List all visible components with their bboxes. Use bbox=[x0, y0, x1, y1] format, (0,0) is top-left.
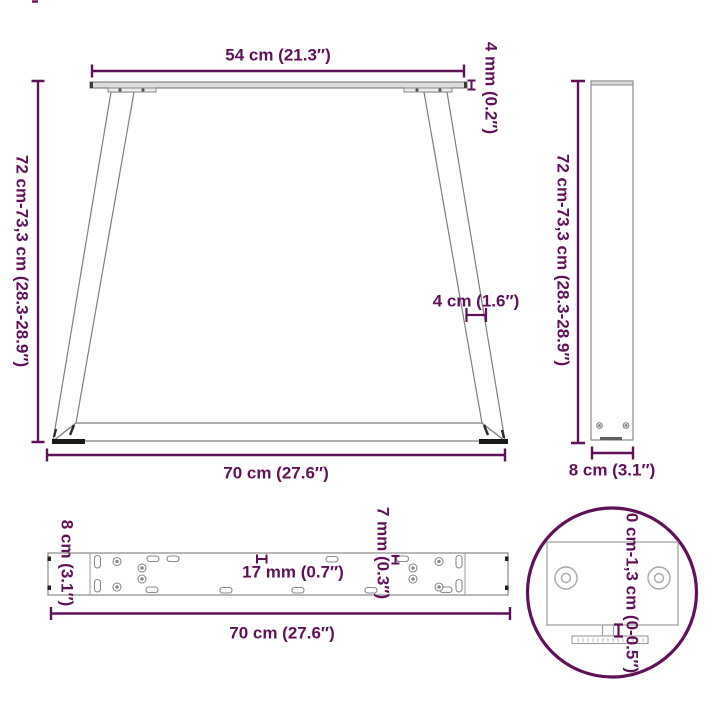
dim-label-plate-depth: 8 cm (3.1″) bbox=[59, 520, 76, 607]
dim-line-plate-length bbox=[51, 607, 510, 620]
dim-line-side-height bbox=[571, 81, 585, 443]
dim-label-front-plate-thickness: 4 mm (0.2″) bbox=[483, 42, 500, 134]
front-left-leg bbox=[53, 92, 134, 441]
dim-label-side-height: 72 cm-73,3 cm (28.3-28.9″) bbox=[555, 154, 572, 366]
dim-label-plate-length: 70 cm (27.6″) bbox=[229, 625, 334, 642]
dim-line-height bbox=[32, 81, 45, 442]
foot-detail-circle bbox=[528, 508, 697, 677]
technical-drawing bbox=[0, 0, 720, 720]
foot-detail-drawing bbox=[547, 542, 678, 644]
dim-label-foot-adjustable-height: 0 cm-1,3 cm (0-0.5″) bbox=[624, 513, 641, 673]
dim-line-side-depth bbox=[592, 447, 633, 460]
front-right-leg bbox=[424, 92, 505, 441]
dim-label-side-depth: 8 cm (3.1″) bbox=[569, 462, 656, 479]
side-foot bbox=[600, 437, 622, 440]
side-top-plate-edge bbox=[591, 81, 633, 85]
dim-label-plate-slot-width: 7 mm (0.3″) bbox=[375, 507, 392, 599]
side-view bbox=[571, 81, 633, 460]
dim-label-front-top-width: 54 cm (21.3″) bbox=[225, 47, 330, 64]
front-view bbox=[32, 2, 509, 462]
dim-label-front-height: 72 cm-73,3 cm (28.3-28.9″) bbox=[14, 155, 31, 367]
foot-thread-stud bbox=[603, 625, 614, 636]
front-bottom-bar bbox=[53, 423, 505, 441]
dim-bracket-plate-thickness bbox=[468, 81, 476, 90]
dim-label-front-leg-width: 4 cm (1.6″) bbox=[433, 293, 520, 310]
dim-label-plate-slot-length: 17 mm (0.7″) bbox=[242, 564, 344, 581]
dim-label-front-bottom-width: 70 cm (27.6″) bbox=[223, 465, 328, 482]
dimension-diagram: 54 cm (21.3″) 4 mm (0.2″) 72 cm-73,3 cm … bbox=[0, 0, 720, 720]
dim-line-top-width bbox=[92, 65, 464, 78]
dim-line-bottom-width bbox=[47, 449, 505, 462]
side-leg-body bbox=[591, 81, 633, 440]
front-top-plate bbox=[90, 82, 467, 92]
